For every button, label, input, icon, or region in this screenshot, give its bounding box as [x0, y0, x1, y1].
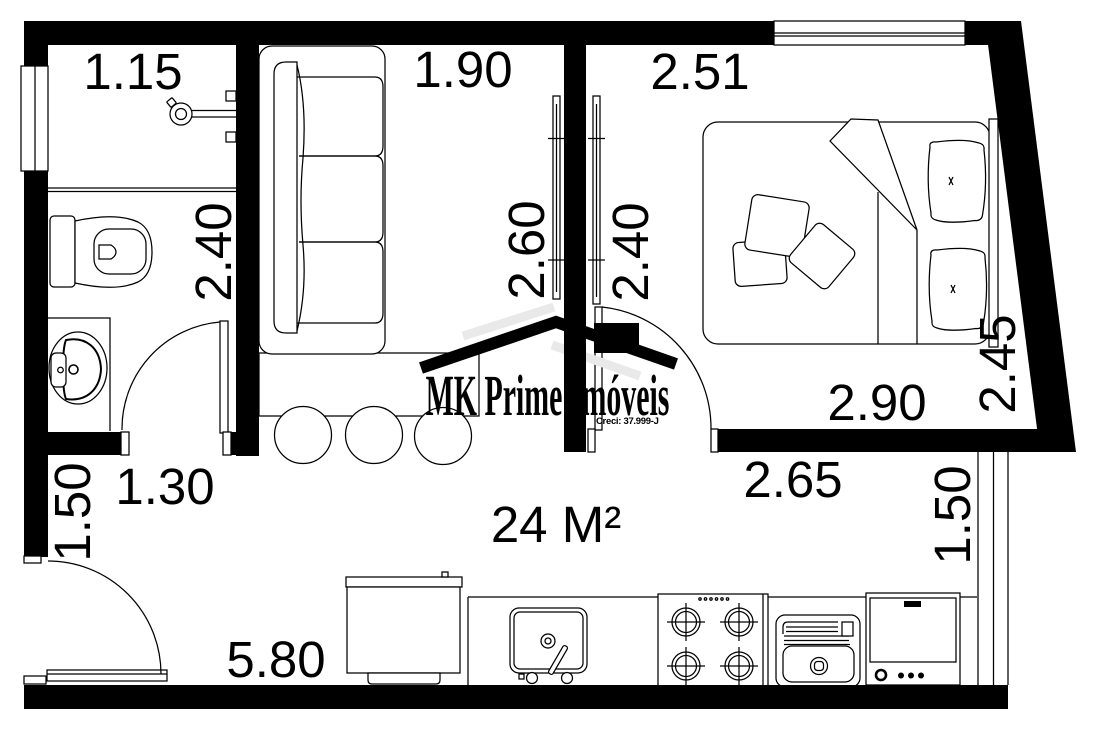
svg-text:Creci: 37.999-J: Creci: 37.999-J	[596, 416, 659, 427]
svg-text:2.40: 2.40	[602, 202, 659, 301]
svg-text:2.65: 2.65	[743, 451, 842, 508]
svg-text:2.90: 2.90	[827, 374, 926, 431]
svg-text:2.40: 2.40	[185, 202, 242, 301]
svg-text:24 M²: 24 M²	[491, 496, 621, 553]
svg-text:1.30: 1.30	[115, 458, 214, 515]
svg-text:1.90: 1.90	[413, 41, 512, 98]
svg-text:1.15: 1.15	[83, 43, 182, 100]
svg-text:1.50: 1.50	[44, 462, 101, 561]
svg-text:2.45: 2.45	[969, 314, 1026, 413]
svg-text:1.50: 1.50	[924, 465, 981, 564]
svg-text:2.60: 2.60	[498, 200, 555, 299]
svg-text:5.80: 5.80	[226, 631, 325, 688]
svg-text:2.51: 2.51	[650, 43, 749, 100]
